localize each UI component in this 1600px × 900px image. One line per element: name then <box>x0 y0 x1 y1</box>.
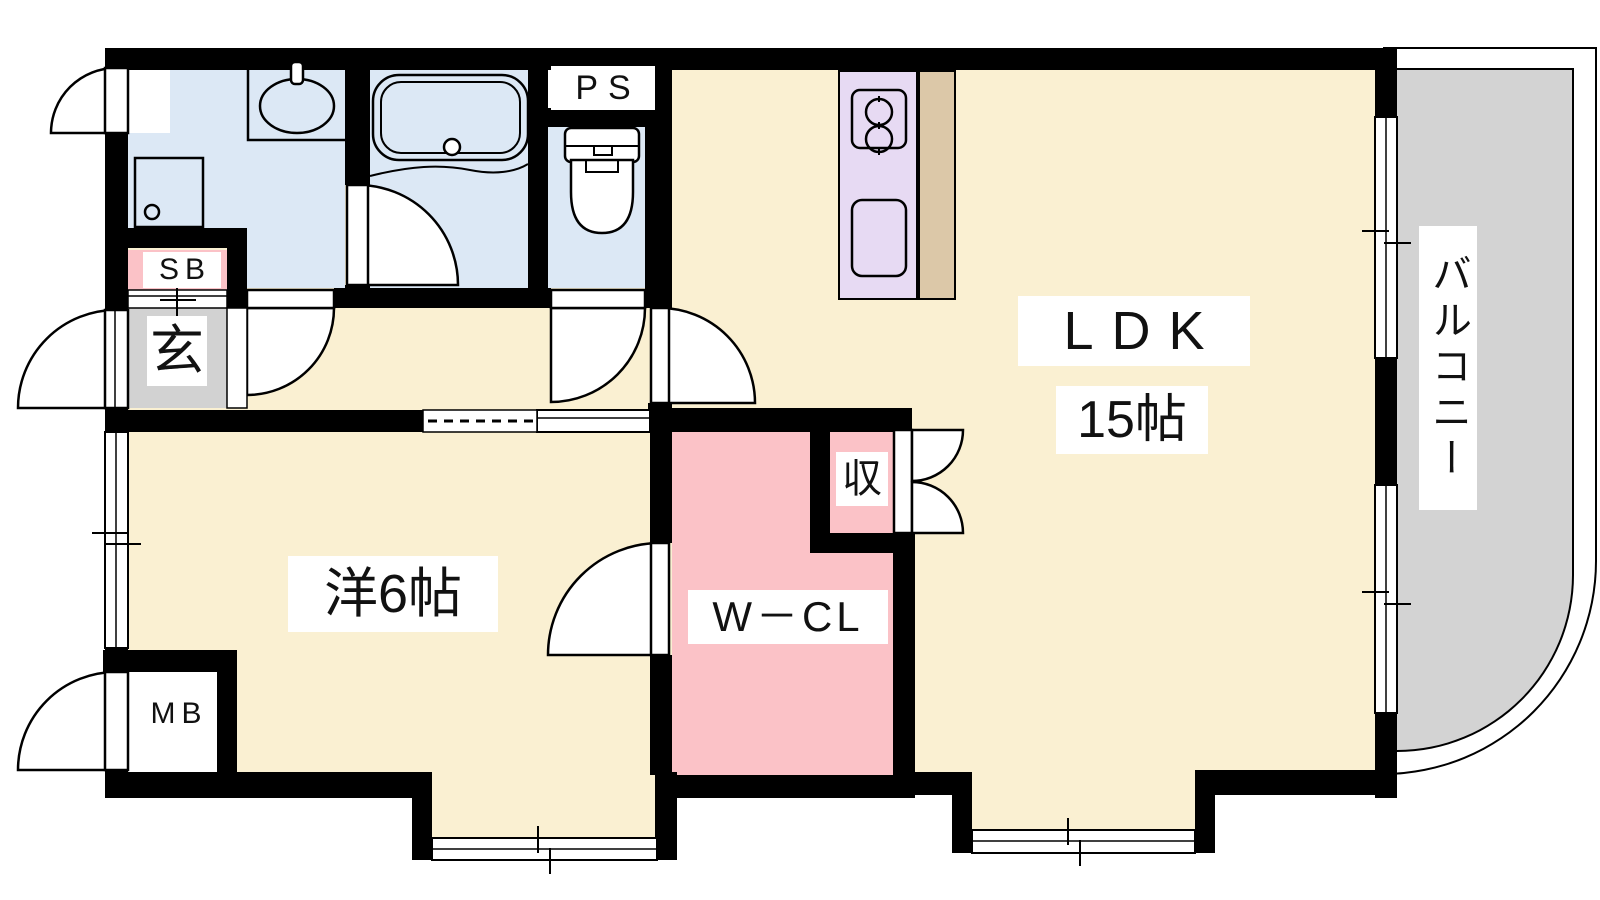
floor-plan: PS SB 玄 MB LDK 15帖 洋6帖 W－CL 収 バルコニー <box>0 0 1600 900</box>
entrance-label: 玄 <box>147 316 207 386</box>
ldk-label: LDK <box>1018 296 1250 366</box>
pipe-space-label: PS <box>551 66 655 110</box>
wash-basin <box>248 62 348 140</box>
bathtub <box>370 75 528 176</box>
bathroom-door <box>347 185 458 285</box>
meter-box-label: MB <box>134 692 218 736</box>
ldk-bay-window <box>972 818 1195 866</box>
kitchen-sink <box>852 200 906 276</box>
shoe-box-label: SB <box>143 252 221 288</box>
western-room-label: 洋6帖 <box>288 556 498 632</box>
balcony-window-upper <box>1362 117 1411 358</box>
fixtures-layer <box>0 0 1600 900</box>
washing-machine-pan <box>135 158 203 227</box>
western-room-bay-window <box>432 826 657 874</box>
service-door <box>51 68 128 133</box>
closet-door <box>548 543 669 655</box>
toilet-door <box>551 290 645 402</box>
entrance-door <box>18 310 128 408</box>
ldk-size-label: 15帖 <box>1056 386 1208 454</box>
storage-double-doors <box>894 430 963 533</box>
stove <box>852 90 906 155</box>
ldk-door <box>651 308 755 403</box>
western-room-side-window <box>92 432 141 648</box>
meter-box-door <box>18 672 128 770</box>
balcony-window-lower <box>1362 485 1411 713</box>
washroom-door <box>247 290 334 395</box>
toilet <box>565 128 639 233</box>
storage-label: 収 <box>836 452 888 506</box>
balcony-label: バルコニー <box>1419 226 1477 510</box>
walk-in-closet-label: W－CL <box>688 590 888 644</box>
western-room-sliding-door <box>423 410 650 432</box>
